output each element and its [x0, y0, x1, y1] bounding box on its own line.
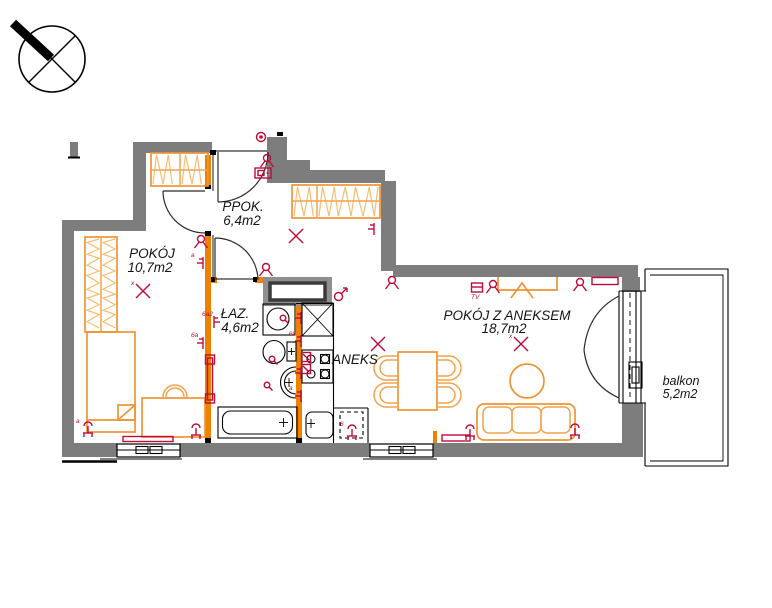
room-label-pokoj: POKÓJ: [129, 246, 175, 261]
wall-light-symbol: [260, 264, 273, 277]
washbasin: [280, 367, 296, 398]
room-label-aneks: ANEKS: [331, 352, 378, 367]
sofa: [477, 404, 575, 440]
floor-socket-symbol: 6: [340, 421, 357, 440]
stove: [302, 350, 333, 383]
wardrobe: [292, 185, 380, 218]
svg-text:a: a: [191, 252, 195, 259]
wall-stub-top-left: [70, 142, 78, 157]
room-door: [163, 191, 205, 233]
floor-plan-page: ax6a6a2aexaTVx6 PPOK. 6,4m2 POKÓJ 10,7m2…: [0, 0, 772, 608]
dot-symbol: [264, 382, 272, 390]
ceiling-light-x-symbol: [371, 337, 385, 351]
dot-symbol: [280, 315, 288, 323]
svg-text:x: x: [130, 280, 135, 287]
svg-text:TV: TV: [471, 294, 480, 301]
toilet: [263, 341, 296, 364]
room-label-laz: ŁAZ.: [221, 306, 250, 321]
fridge: [302, 303, 333, 336]
balcony-door: [584, 291, 646, 403]
socket-box-symbol: [302, 353, 311, 362]
tv-stand: [498, 277, 557, 298]
window-living: [370, 444, 433, 457]
dining-table: [374, 352, 461, 410]
ceiling-light-x-symbol: [289, 229, 303, 243]
window-bedroom: [117, 444, 180, 457]
floor-plan-drawing: ax6a6a2aexaTVx6 PPOK. 6,4m2 POKÓJ 10,7m2…: [0, 0, 772, 608]
room-area-balkon: 5,2m2: [663, 387, 698, 401]
labels-layer: PPOK. 6,4m2 POKÓJ 10,7m2 ŁAZ. 4,6m2 ANEK…: [127, 199, 699, 401]
bathtub: [218, 407, 297, 438]
ceiling-light-x-symbol: x: [130, 280, 150, 298]
svg-text:a: a: [76, 418, 80, 425]
ventilation-shaft: [263, 277, 332, 306]
junction-box-symbol: [257, 133, 266, 142]
bed: [87, 332, 135, 432]
wall-light-symbol: [386, 277, 399, 290]
svg-text:a: a: [289, 385, 293, 392]
tv-socket-symbol: TV: [471, 283, 483, 301]
north-arrow-icon: [13, 23, 85, 92]
room-label-balkon: balkon: [663, 374, 700, 388]
balcony-outline: [645, 269, 728, 466]
wardrobe: [151, 153, 208, 186]
wall-light-symbol: [574, 279, 587, 292]
svg-text:6a2: 6a2: [202, 311, 213, 318]
room-area-pokoj-z-aneksem: 18,7m2: [481, 321, 527, 336]
wardrobe: [85, 237, 117, 332]
kitchen-sink: [306, 412, 333, 438]
bathroom-door: [215, 238, 258, 280]
round-table: [510, 364, 544, 398]
radiator-symbol: [592, 278, 618, 285]
svg-text:6: 6: [340, 421, 344, 428]
room-label-ppok: PPOK.: [222, 199, 263, 214]
room-area-ppok: 6,4m2: [223, 213, 261, 228]
socket-box-symbol: [302, 365, 311, 374]
socket-symbol: [368, 223, 374, 235]
room-area-pokoj: 10,7m2: [127, 260, 173, 275]
doors-layer: [163, 152, 646, 403]
svg-text:ex: ex: [289, 330, 297, 337]
socket-symbol: a: [191, 252, 203, 269]
mars-symbol: [335, 288, 348, 301]
socket-symbol: 6a: [191, 332, 203, 349]
svg-text:6a: 6a: [191, 332, 199, 339]
entrance-door: [218, 152, 268, 202]
room-area-laz: 4,6m2: [221, 320, 259, 335]
